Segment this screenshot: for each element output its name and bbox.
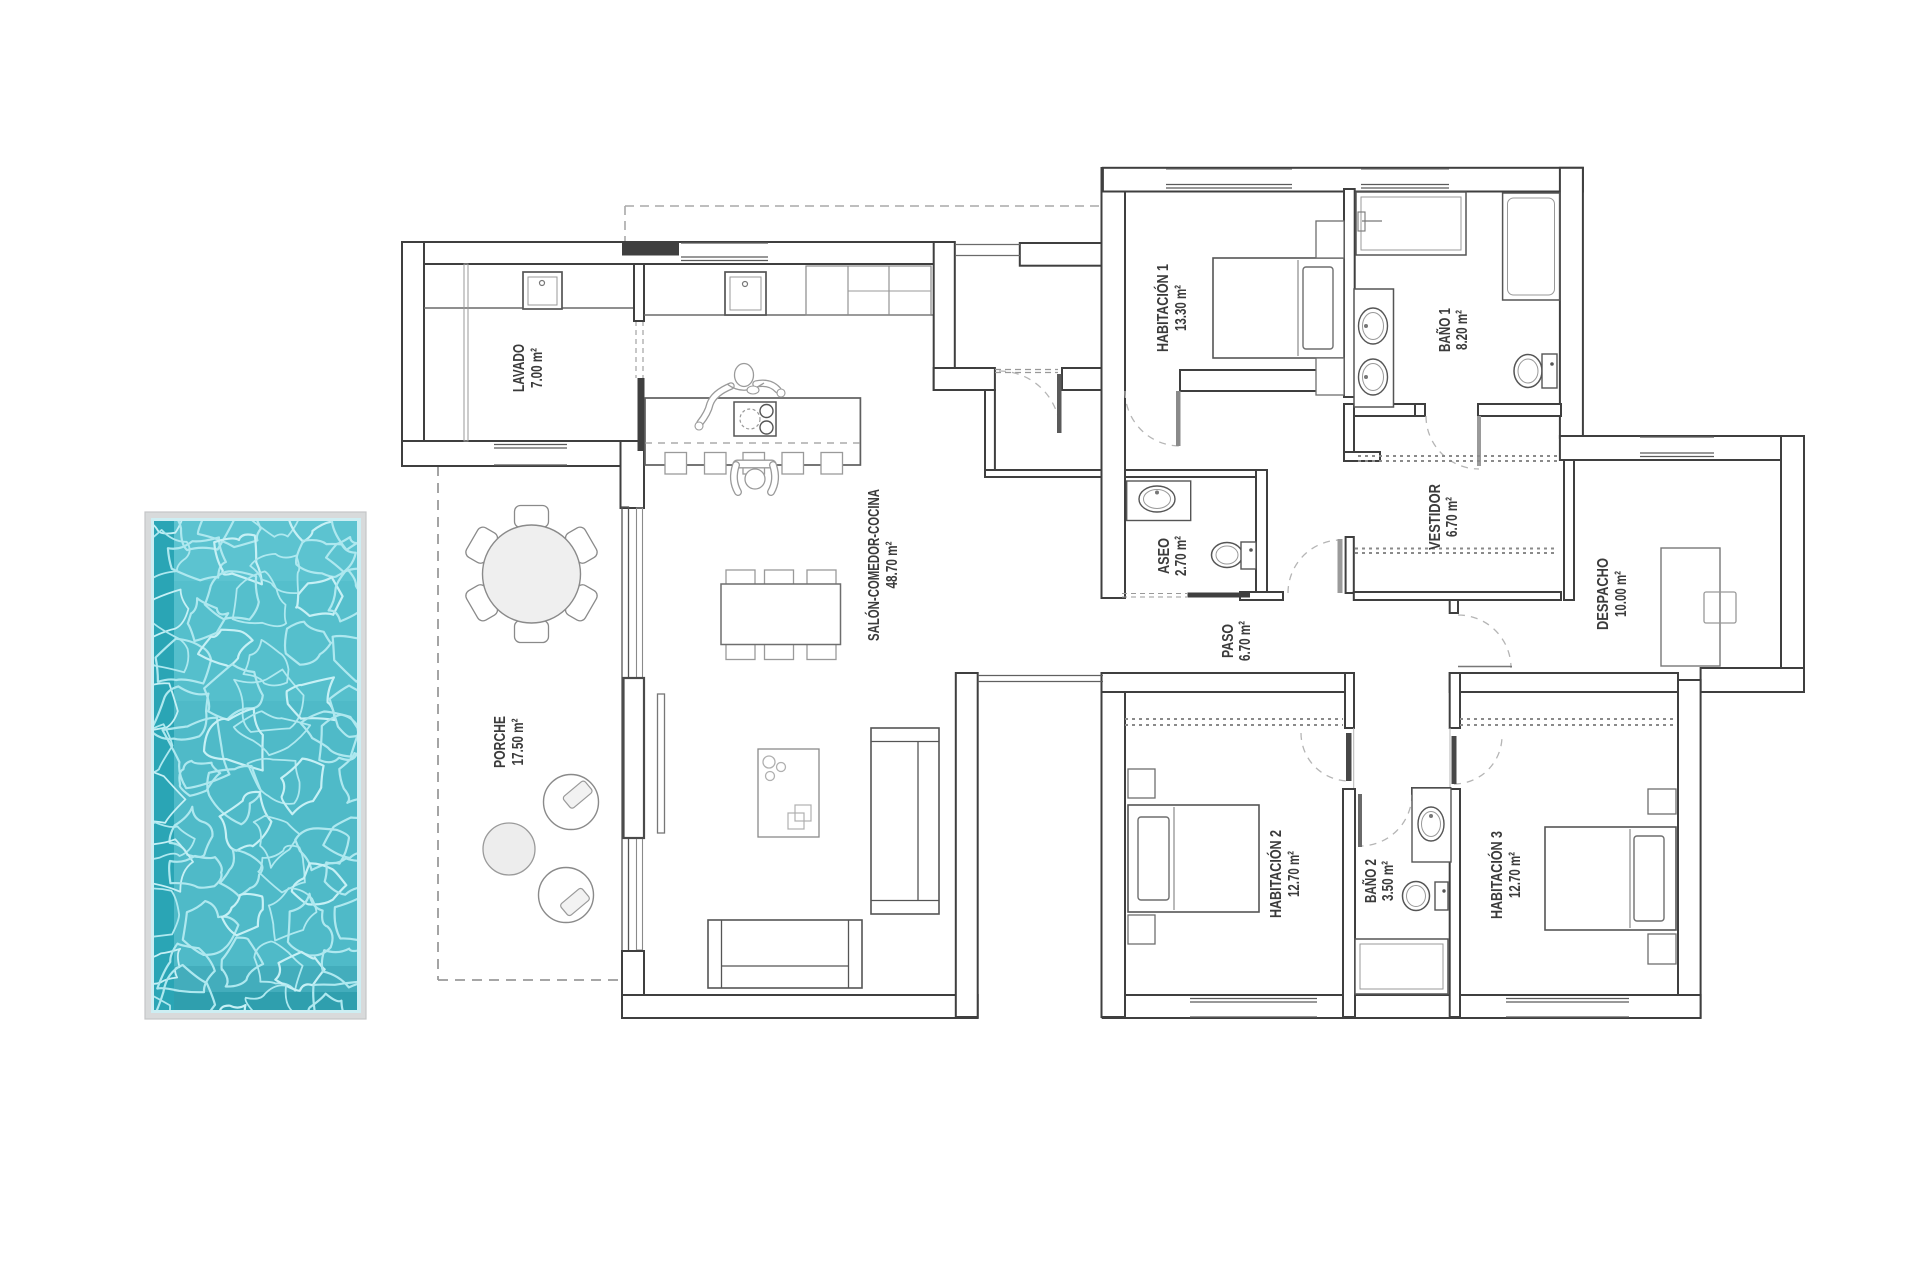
svg-text:PASO: PASO (1220, 624, 1237, 658)
svg-text:HABITACIÓN 3: HABITACIÓN 3 (1487, 831, 1506, 919)
svg-text:6.70 m²: 6.70 m² (1237, 621, 1254, 661)
svg-text:HABITACIÓN 2: HABITACIÓN 2 (1266, 830, 1285, 918)
svg-text:HABITACIÓN 1: HABITACIÓN 1 (1153, 264, 1172, 352)
svg-text:12.70 m²: 12.70 m² (1286, 851, 1303, 897)
svg-text:SALÓN-COMEDOR-COCINA: SALÓN-COMEDOR-COCINA (864, 489, 883, 641)
svg-text:6.70 m²: 6.70 m² (1444, 497, 1461, 537)
svg-text:13.30 m²: 13.30 m² (1173, 285, 1190, 331)
svg-text:ASEO: ASEO (1156, 538, 1173, 574)
svg-text:8.20 m²: 8.20 m² (1454, 310, 1471, 350)
svg-text:17.50 m²: 17.50 m² (510, 719, 527, 766)
svg-text:48.70 m²: 48.70 m² (884, 542, 901, 589)
svg-text:3.50 m²: 3.50 m² (1380, 861, 1397, 901)
svg-text:DESPACHO: DESPACHO (1595, 558, 1612, 630)
svg-text:BAÑO 2: BAÑO 2 (1360, 859, 1380, 903)
svg-text:7.00 m²: 7.00 m² (529, 348, 546, 388)
svg-text:PORCHE: PORCHE (492, 716, 509, 768)
svg-text:VESTIDOR: VESTIDOR (1427, 484, 1444, 550)
svg-text:BAÑO 1: BAÑO 1 (1434, 308, 1454, 352)
svg-text:12.70 m²: 12.70 m² (1507, 852, 1524, 898)
svg-text:10.00 m²: 10.00 m² (1613, 571, 1630, 617)
svg-text:LAVADO: LAVADO (511, 344, 528, 392)
svg-text:2.70 m²: 2.70 m² (1173, 536, 1190, 576)
